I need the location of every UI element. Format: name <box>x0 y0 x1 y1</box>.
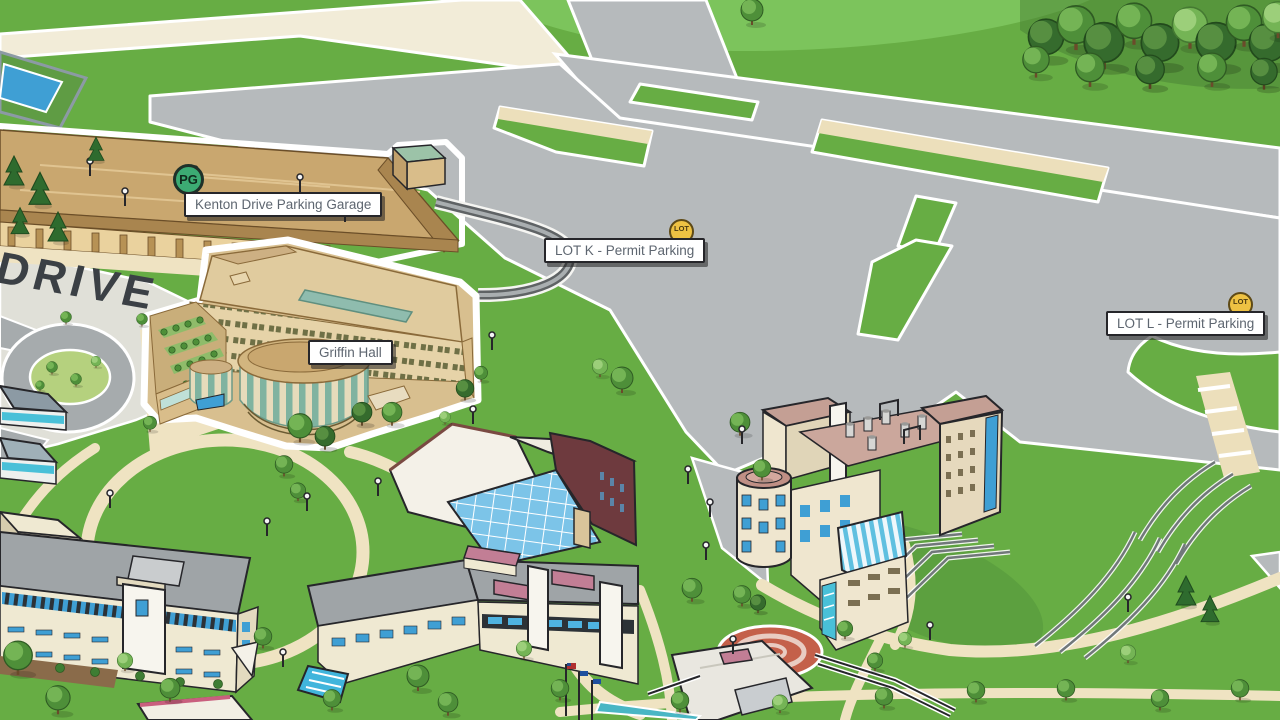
parking-garage-badge[interactable]: PG <box>173 164 204 195</box>
campus-map[interactable]: DRIVE PG LOT LOT Kenton Drive Parking Ga… <box>0 0 1280 720</box>
label-griffin-hall[interactable]: Griffin Hall <box>308 340 393 365</box>
label-kenton-drive-parking-garage[interactable]: Kenton Drive Parking Garage <box>184 192 382 217</box>
griffin-west-cylinder <box>190 360 232 410</box>
label-lot-k[interactable]: LOT K - Permit Parking <box>544 238 705 263</box>
garage-stair-tower <box>393 145 445 189</box>
map-illustration <box>0 0 1280 720</box>
cylinder-tower <box>737 468 791 567</box>
label-lot-l[interactable]: LOT L - Permit Parking <box>1106 311 1265 336</box>
